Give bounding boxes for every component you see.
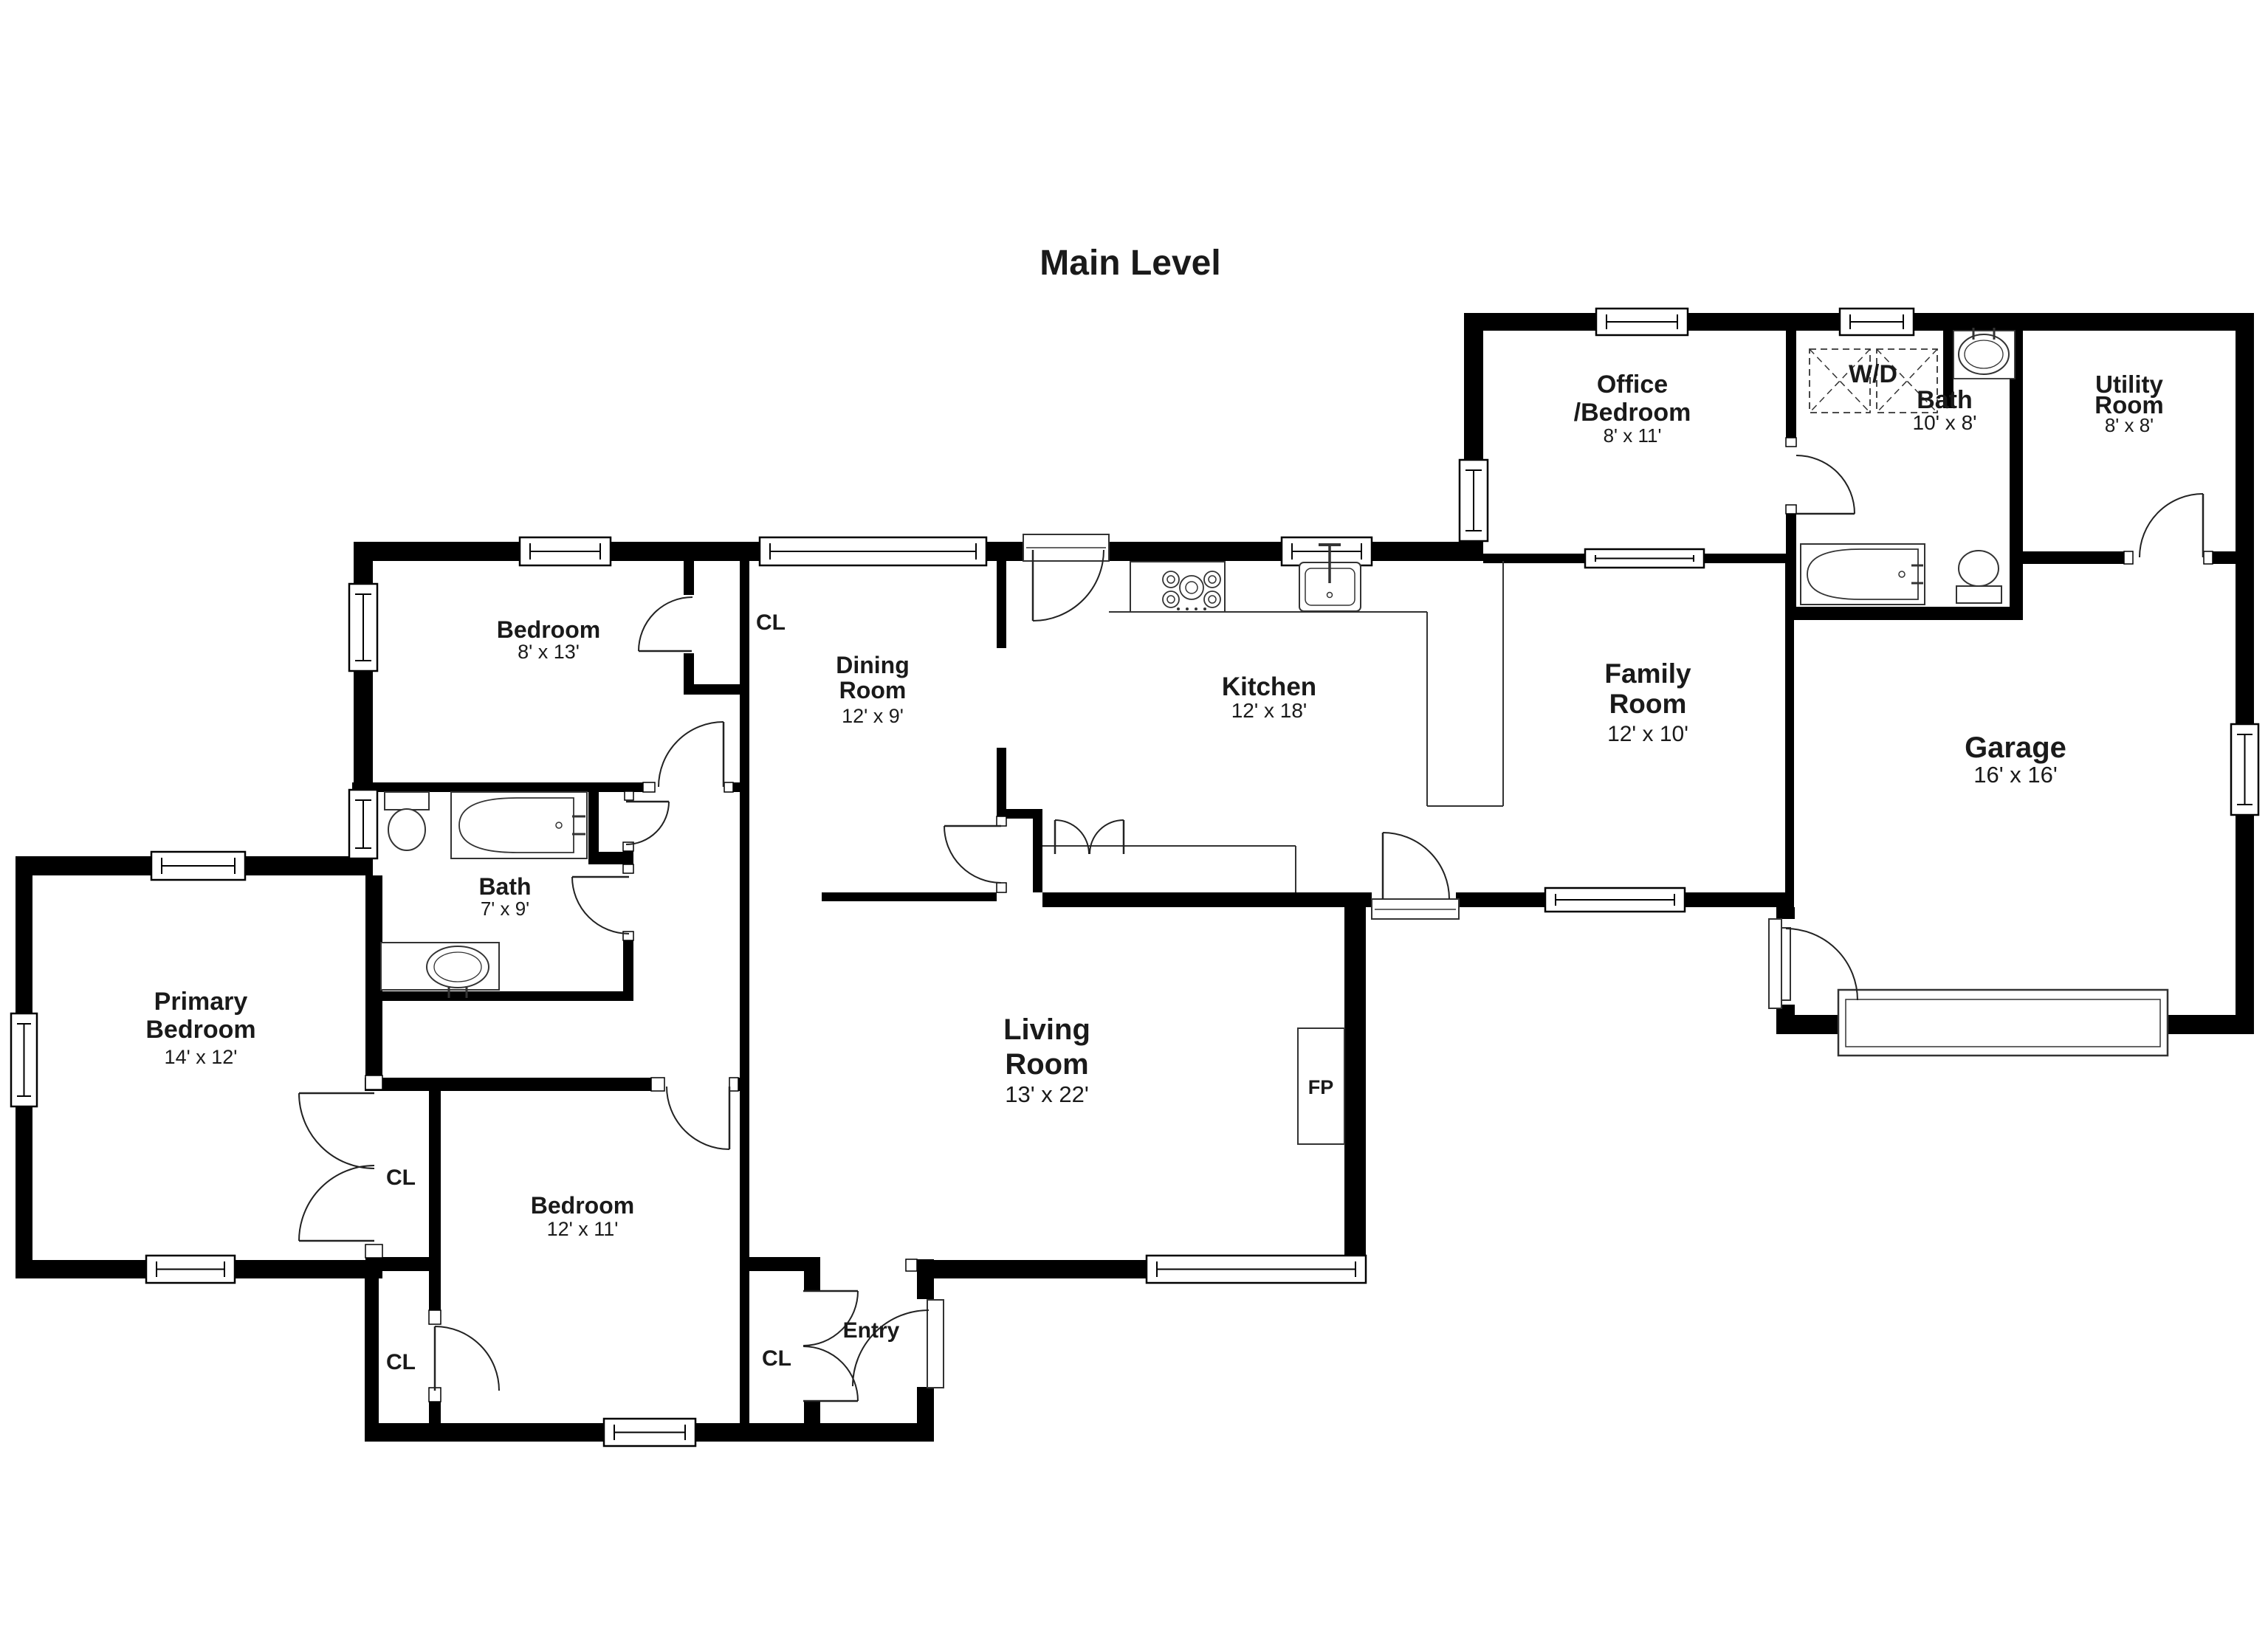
svg-text:Office: Office [1597, 371, 1668, 399]
svg-text:CL: CL [386, 1166, 416, 1190]
svg-text:Room: Room [1005, 1048, 1088, 1081]
svg-text:CL: CL [756, 610, 786, 635]
svg-text:7' x 9': 7' x 9' [481, 898, 529, 920]
svg-text:12' x 18': 12' x 18' [1231, 699, 1307, 722]
svg-text:12' x 10': 12' x 10' [1607, 722, 1688, 746]
svg-text:CL: CL [762, 1346, 791, 1371]
svg-text:Primary: Primary [154, 988, 248, 1016]
svg-text:Main Level: Main Level [1039, 244, 1220, 283]
svg-text:10' x 8': 10' x 8' [1913, 411, 1977, 434]
svg-text:Bath: Bath [1917, 386, 1973, 414]
svg-text:Dining: Dining [836, 652, 910, 678]
svg-text:13' x 22': 13' x 22' [1005, 1081, 1089, 1107]
svg-text:8' x 11': 8' x 11' [1604, 424, 1662, 447]
svg-text:Room: Room [1609, 689, 1687, 719]
svg-text:Bedroom: Bedroom [497, 616, 600, 643]
svg-text:Kitchen: Kitchen [1222, 672, 1316, 701]
svg-text:12' x 9': 12' x 9' [842, 705, 904, 727]
svg-text:FP: FP [1308, 1076, 1334, 1098]
svg-text:8' x 13': 8' x 13' [518, 641, 580, 663]
svg-text:Garage: Garage [1965, 731, 2066, 764]
svg-text:Bedroom: Bedroom [145, 1016, 255, 1044]
svg-text:8' x 8': 8' x 8' [2105, 414, 2154, 436]
svg-text:W/D: W/D [1849, 360, 1897, 388]
svg-text:Bath: Bath [478, 873, 531, 900]
svg-text:12' x 11': 12' x 11' [547, 1218, 619, 1240]
svg-text:Family: Family [1604, 658, 1691, 689]
svg-text:Entry: Entry [843, 1318, 900, 1343]
svg-text:/Bedroom: /Bedroom [1574, 399, 1691, 427]
svg-text:Living: Living [1003, 1013, 1090, 1046]
svg-text:Bedroom: Bedroom [531, 1192, 634, 1219]
svg-text:CL: CL [386, 1350, 416, 1374]
svg-text:Room: Room [839, 677, 907, 703]
svg-text:14' x 12': 14' x 12' [165, 1046, 238, 1068]
svg-text:16' x 16': 16' x 16' [1973, 762, 2058, 788]
